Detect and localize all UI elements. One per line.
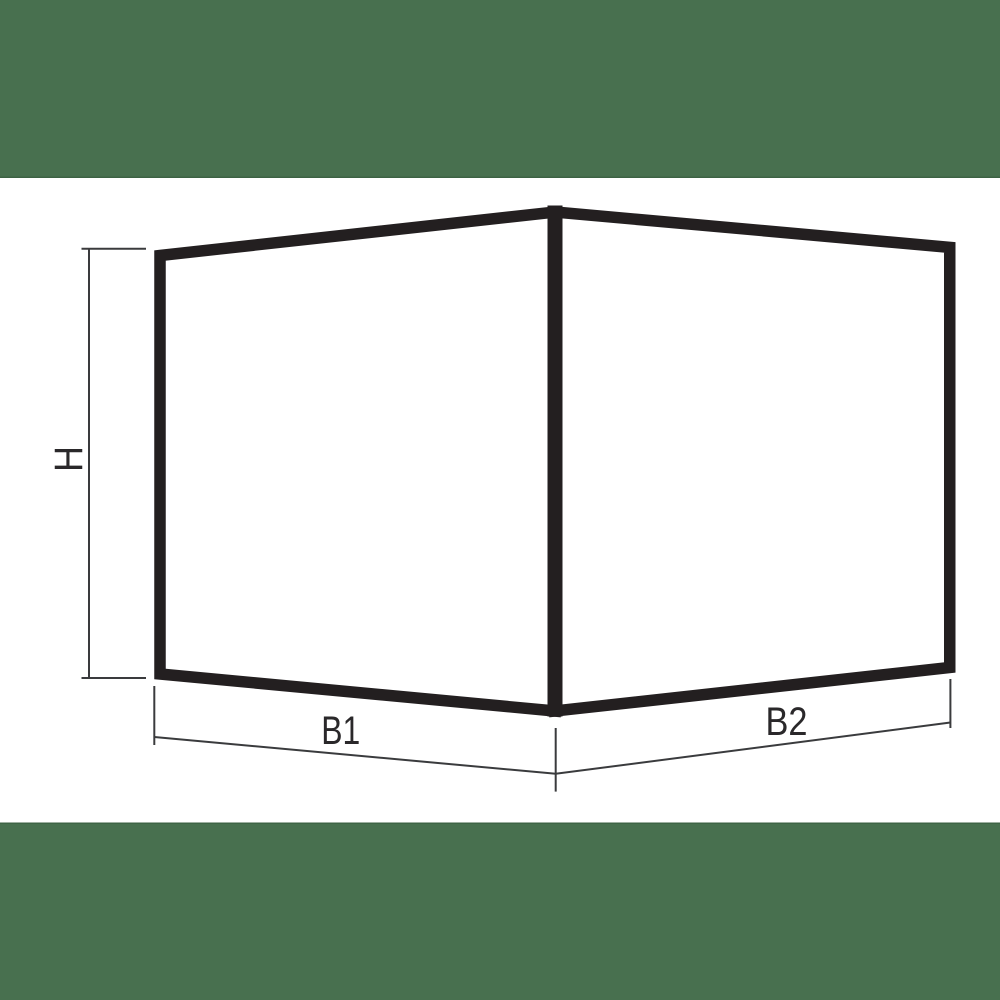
svg-text:B2: B2 (766, 700, 808, 744)
svg-text:H: H (47, 446, 91, 472)
svg-text:B1: B1 (321, 709, 360, 753)
